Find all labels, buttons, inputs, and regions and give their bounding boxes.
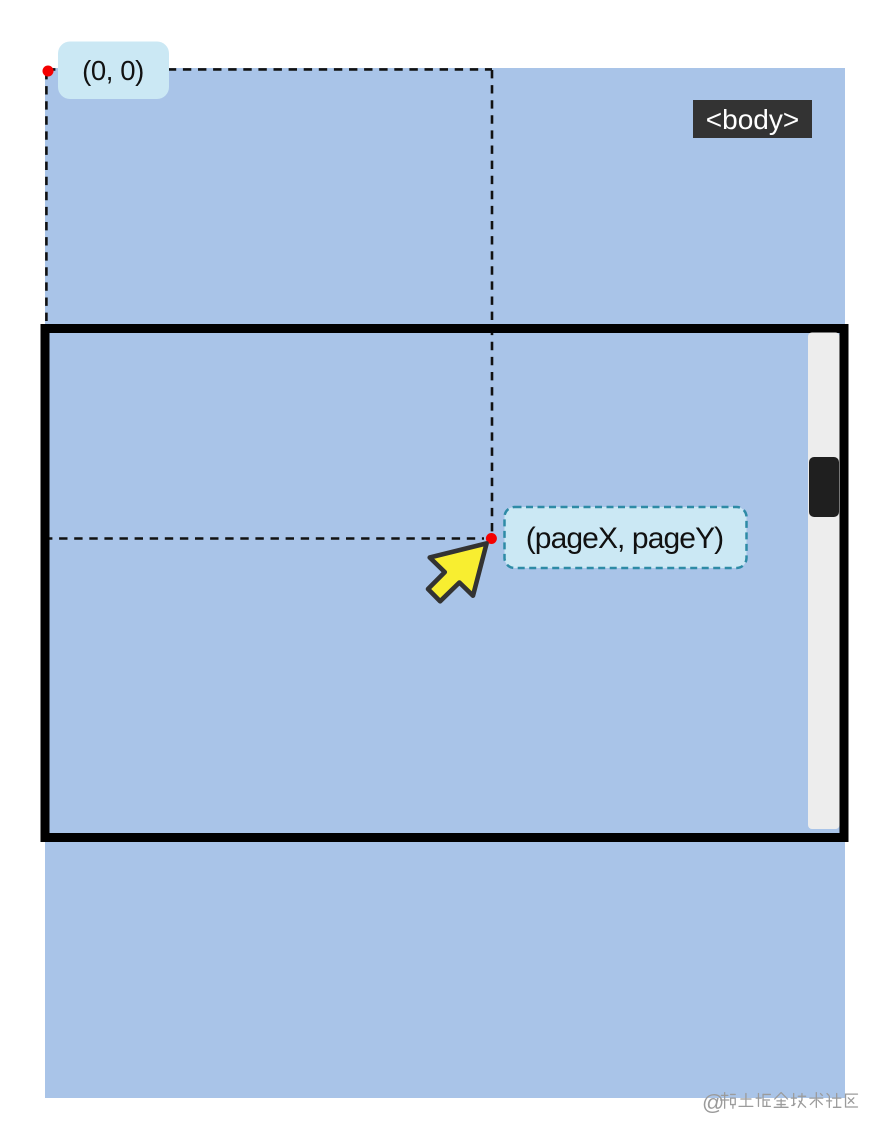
svg-text:@: @: [702, 1090, 724, 1115]
svg-text:<body>: <body>: [706, 104, 799, 135]
svg-text:(pageX, pageY): (pageX, pageY): [526, 522, 724, 555]
svg-text:(0, 0): (0, 0): [82, 55, 144, 86]
